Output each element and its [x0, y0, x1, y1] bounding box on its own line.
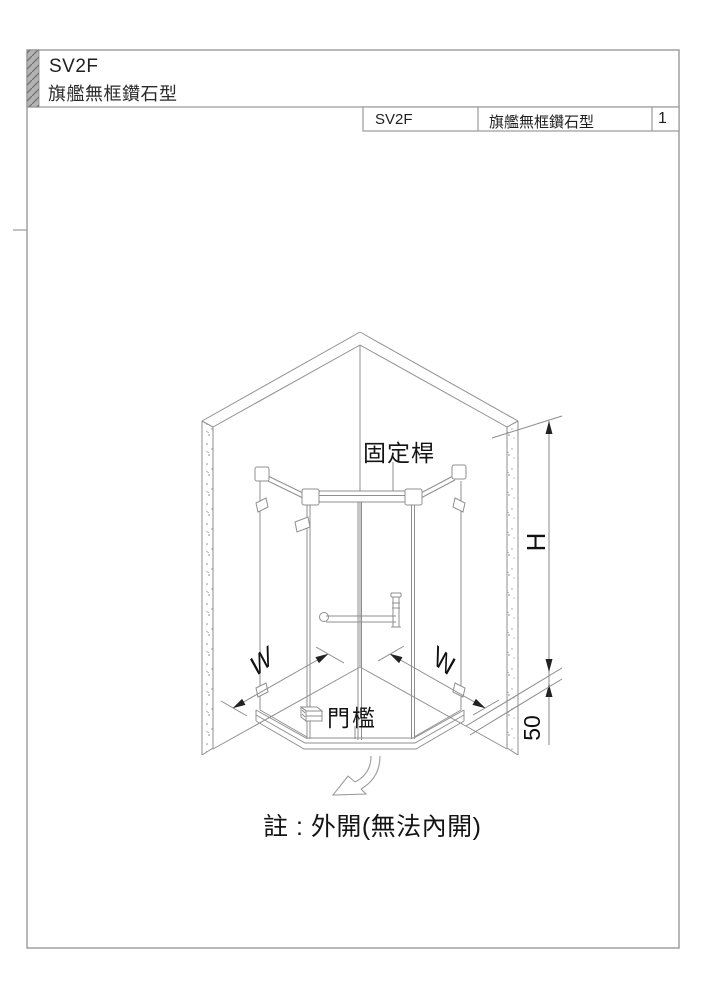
- wall-bracket-right: [452, 465, 466, 479]
- corner-connector-left: [302, 489, 319, 505]
- threshold-label: 門檻: [327, 699, 377, 733]
- header-series-name: 旗艦無框鑽石型: [48, 80, 178, 106]
- threshold-height-dimension: 50: [519, 708, 545, 748]
- clamp-left-bottom: [256, 683, 268, 697]
- clamp-left-top: [256, 498, 268, 512]
- title-block-name: 旗艦無框鑽石型: [489, 111, 594, 132]
- bottom-latch: [301, 707, 322, 721]
- header-model: SV2F: [49, 56, 99, 78]
- leader-lines: [355, 462, 393, 739]
- clamp-right-top: [453, 498, 465, 512]
- door-swing-arrow: [333, 756, 380, 795]
- isometric-drawing: [0, 0, 705, 1000]
- room-walls: [202, 332, 518, 755]
- corner-connector-right: [405, 489, 422, 505]
- title-block-page-number: 1: [658, 110, 667, 128]
- wall-bracket-left: [255, 467, 269, 481]
- left-wall-texture: [203, 422, 213, 752]
- door-hinge: [295, 517, 310, 532]
- spec-sheet-page: SV2F 旗艦無框鑽石型 SV2F 旗艦無框鑽石型 1 固定桿 門檻 W W H…: [0, 0, 705, 1000]
- opening-note: 註 : 外開(無法內開): [263, 807, 482, 843]
- clamp-right-bottom: [453, 683, 465, 697]
- title-block-model: SV2F: [375, 111, 413, 128]
- height-dimension: H: [521, 527, 551, 557]
- right-wall-texture: [508, 422, 518, 752]
- fixed-bar-label: 固定桿: [363, 434, 435, 468]
